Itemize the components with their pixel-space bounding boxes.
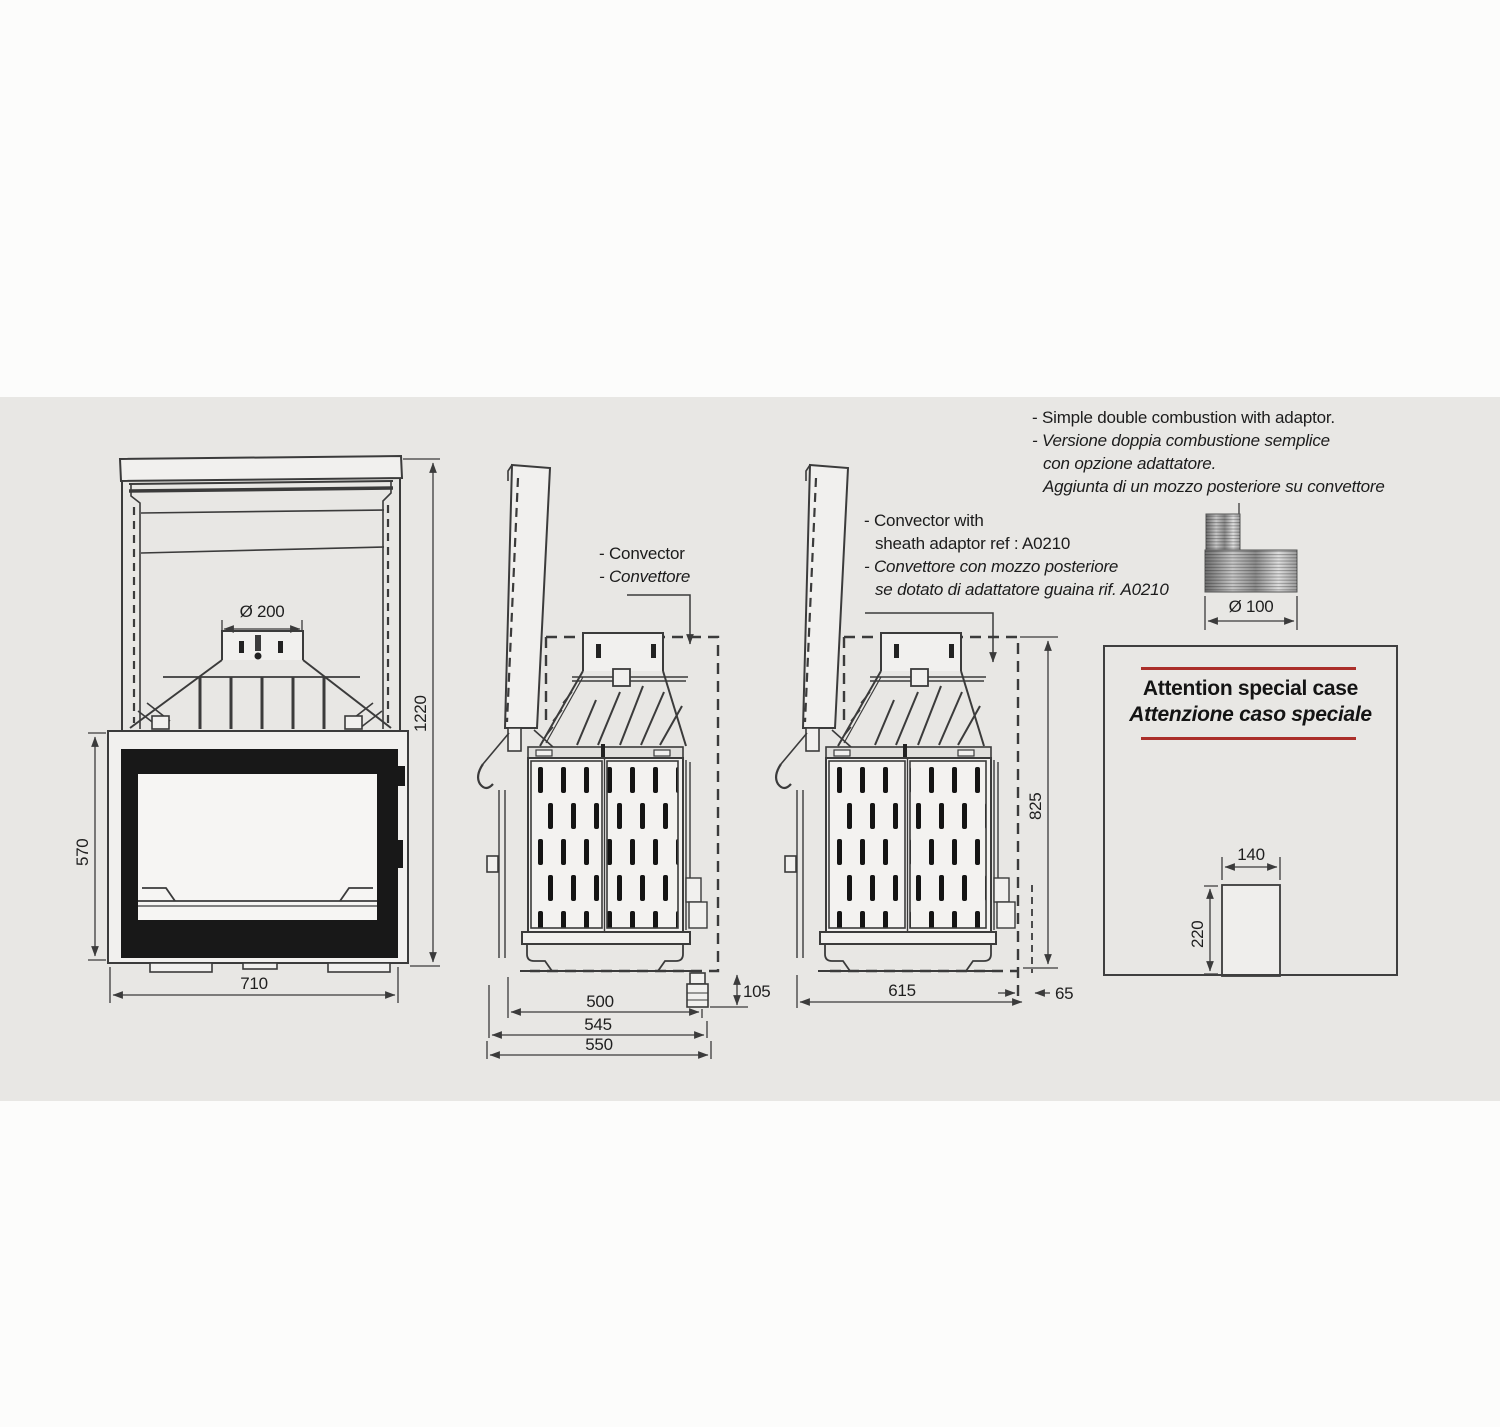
red-rule-bottom <box>1141 737 1356 740</box>
adaptor-large-cylinder <box>1205 550 1297 592</box>
open-door-panel <box>505 465 550 728</box>
dome-hatching <box>875 686 980 745</box>
side1-dimensions <box>487 975 748 1059</box>
dim-label-flue: Ø 200 <box>240 602 285 621</box>
vent-panel <box>829 761 905 928</box>
attention-title-it: Attenzione caso speciale <box>1105 703 1396 727</box>
open-door-panel <box>803 465 848 728</box>
note-line: - Convector with <box>864 509 1169 532</box>
dim-label-65: 65 <box>1055 984 1073 1003</box>
dim-label-570: 570 <box>73 839 92 866</box>
door-latch-top <box>396 766 405 786</box>
dim-label-825: 825 <box>1026 793 1045 820</box>
note-line: sheath adaptor ref : A0210 <box>864 532 1169 555</box>
dome-hatching <box>577 686 682 745</box>
dim-label-105: 105 <box>743 982 770 1001</box>
dim-label-615: 615 <box>888 981 915 1000</box>
vent-panel <box>607 761 678 928</box>
dim-label-550: 550 <box>585 1035 612 1054</box>
technical-drawing-page: Ø 200 1220 570 710 <box>0 0 1500 1427</box>
door-hook <box>776 764 791 788</box>
hood-cap <box>120 456 402 481</box>
note-line: - Convector <box>599 542 690 565</box>
note-line: - Convettore con mozzo posteriore <box>864 555 1169 578</box>
vent-panel <box>910 761 986 928</box>
dim-label-710: 710 <box>240 974 267 993</box>
door-latch-bottom <box>394 840 403 868</box>
dim-label-1220: 1220 <box>411 695 430 732</box>
note-line: - Simple double combustion with adaptor. <box>1032 406 1385 429</box>
convector-label: - Convector - Convettore <box>599 542 690 588</box>
smoke-dome-cap <box>222 631 303 660</box>
attention-special-case-box: Attention special case Attenzione caso s… <box>1103 645 1398 976</box>
door-hook <box>478 764 493 788</box>
red-rule-top <box>1141 667 1356 670</box>
note-line: se dotato di adattatore guaina rif. A021… <box>864 578 1169 601</box>
vent-panel <box>531 761 602 928</box>
note-line: - Convettore <box>599 565 690 588</box>
dim-label-adaptor-dia: Ø 100 <box>1229 597 1274 616</box>
note-line: Aggiunta di un mozzo posteriore su conve… <box>1032 475 1385 498</box>
note-line: - Versione doppia combustione semplice <box>1032 429 1385 452</box>
sheath-adaptor-note: - Convector with sheath adaptor ref : A0… <box>864 509 1169 601</box>
dome-slope-left <box>130 660 222 728</box>
double-combustion-note: - Simple double combustion with adaptor.… <box>1032 406 1385 498</box>
note-line: con opzione adattatore. <box>1032 452 1385 475</box>
attention-title-en: Attention special case <box>1105 677 1396 701</box>
dim-label-500: 500 <box>586 992 613 1011</box>
hood-band-2 <box>129 488 393 491</box>
dim-label-545: 545 <box>584 1015 611 1034</box>
adaptor-graphic: Ø 100 <box>1205 503 1297 630</box>
adaptor-small-cylinder <box>1206 514 1240 550</box>
front-view: Ø 200 1220 570 710 <box>73 456 440 1003</box>
